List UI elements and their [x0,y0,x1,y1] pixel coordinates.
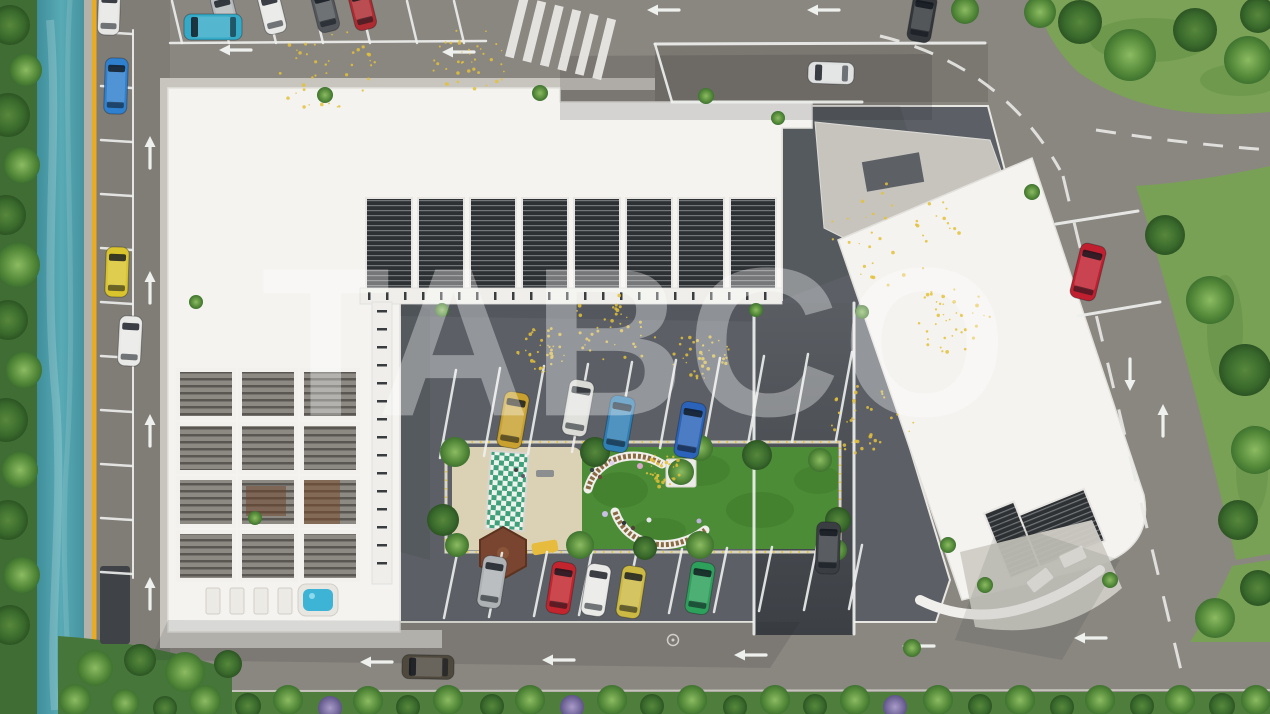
central-planter [666,459,696,487]
tree [1085,685,1115,714]
car-parked-car-blue-left [104,58,129,115]
car-driving-car-white-left [117,315,143,366]
tree [760,685,790,714]
water-streak [50,20,58,710]
hedge-dark [100,566,130,644]
tree [903,639,921,657]
tree [1024,184,1040,200]
tree [214,650,242,678]
tree [1165,685,1195,714]
tree [165,652,205,692]
tree [698,88,714,104]
tree [189,295,203,309]
tree [273,685,303,714]
tree [1102,572,1118,588]
tree [1218,500,1258,540]
tree [77,650,113,686]
tree [1173,8,1217,52]
tree [427,504,459,536]
tree [566,531,594,559]
tree [4,147,40,183]
lane-line [655,43,985,44]
tree [440,437,470,467]
tree [840,685,870,714]
tree [433,685,463,714]
tree [435,303,449,317]
rooftop-jacuzzi [298,584,338,616]
canal-bank [84,0,93,660]
play-bench [536,470,554,477]
tree [1145,215,1185,255]
play-canopy [485,451,528,531]
tree [1058,0,1102,44]
tree [808,448,832,472]
car-parked-car-white-topleft [97,0,121,35]
tree [1195,598,1235,638]
tree [742,440,772,470]
tree [855,305,869,319]
tree [1005,685,1035,714]
tree [317,87,333,103]
tree [1186,276,1234,324]
tree [124,644,156,676]
aerial-render-scene: TABCO [0,0,1270,714]
tree [515,685,545,714]
tree [532,85,548,101]
curb [232,690,1270,691]
tree [923,685,953,714]
tree [771,111,785,125]
tree [4,557,40,593]
tree [977,577,993,593]
tree [2,452,38,488]
tree [1104,29,1156,81]
car-parked-car-teal-top [184,14,242,40]
tree [940,537,956,553]
tree [686,531,714,559]
car-parked-car-yellow-left [105,247,130,298]
tree [1219,344,1270,396]
car-driving-car-white-driveway [808,61,855,85]
tree [10,54,42,86]
canal-water [37,0,85,714]
tree [597,685,627,714]
tree [633,536,657,560]
tree [677,685,707,714]
tree [248,511,262,525]
yellow-barrier [92,0,97,646]
scene-canvas [0,0,1270,714]
car-driving-car-bronze-bottom [402,655,454,680]
tree [749,303,763,317]
car-driving-car-black-ramp [815,522,841,575]
inner-wall-left [372,302,392,584]
tree [445,533,469,557]
tree [6,352,42,388]
tree [1224,36,1270,84]
